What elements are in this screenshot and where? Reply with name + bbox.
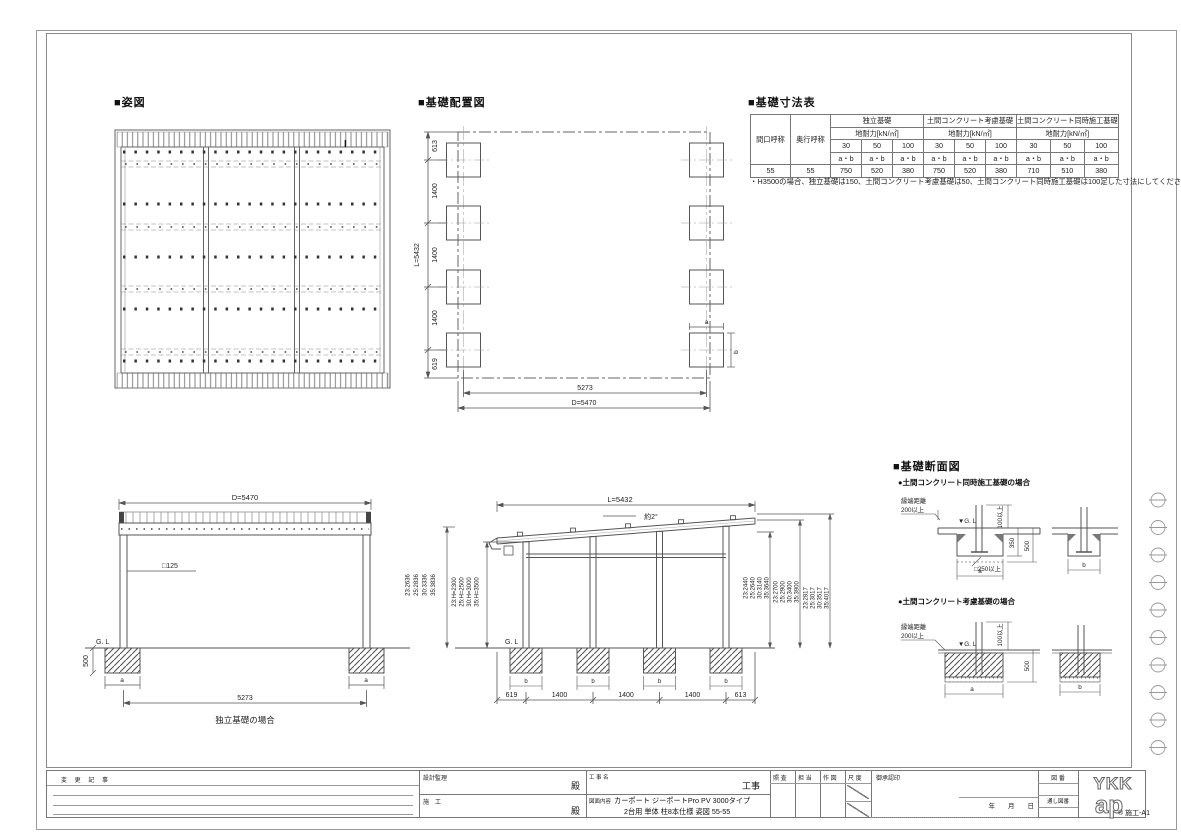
subheader-bearing: 地耐力[kN/㎡] bbox=[831, 127, 924, 140]
scale-label: 尺 度 bbox=[848, 773, 862, 782]
side-h-inner: 35:H=3500 bbox=[475, 577, 481, 607]
drawing-content-line1: カーポート ジーポートPro PV 3000タイプ bbox=[614, 796, 750, 807]
front-dim-total: D=5470 bbox=[232, 493, 258, 502]
side-dim-613: 613 bbox=[735, 692, 747, 699]
ab-header: a・b bbox=[1050, 152, 1084, 165]
dim-b: b bbox=[733, 350, 740, 354]
capacity: 100 bbox=[893, 140, 924, 153]
ab-header: a・b bbox=[893, 152, 924, 165]
drawing-number-cell: 図 番 通し図番 bbox=[1038, 771, 1078, 819]
change-record-label: 変 更 記 事 bbox=[61, 775, 111, 784]
col-header-depth: 奥行呼称 bbox=[791, 115, 831, 165]
sec1-b: b bbox=[1082, 562, 1086, 569]
ab-header: a・b bbox=[955, 152, 986, 165]
project-name-label: 工 事 名 bbox=[589, 773, 609, 781]
front-dim-a: a bbox=[120, 677, 124, 684]
project-name-cell: 工 事 名 工事 bbox=[586, 771, 770, 795]
ab-header: a・b bbox=[1017, 152, 1051, 165]
drawing-content-label: 図面内容 bbox=[589, 797, 611, 805]
construction-cell: 施 工 殿 bbox=[419, 795, 586, 819]
logo-ykk-text: YKK bbox=[1094, 774, 1133, 793]
sec1-500: 500 bbox=[1024, 540, 1031, 551]
capacity: 50 bbox=[1050, 140, 1084, 153]
plan-title: ■姿図 bbox=[114, 94, 146, 110]
front-dim-500: 500 bbox=[83, 655, 90, 667]
sec2-edge-min: 200以上 bbox=[901, 631, 924, 640]
side-dim-619: 619 bbox=[506, 692, 518, 699]
ab-header: a・b bbox=[924, 152, 955, 165]
side-dim-1400: 1400 bbox=[685, 692, 701, 699]
construction-dono: 殿 bbox=[571, 804, 580, 817]
dim-1400: 1400 bbox=[432, 183, 439, 199]
charge-label: 担 当 bbox=[798, 773, 812, 782]
capacity: 30 bbox=[924, 140, 955, 153]
sec2-b: b bbox=[1078, 684, 1082, 691]
dim-l-total: L=5432 bbox=[414, 243, 421, 267]
front-gl-label: G. L bbox=[96, 639, 109, 646]
side-dim-1400: 1400 bbox=[552, 692, 568, 699]
side-r1: 30:3140 bbox=[758, 577, 764, 599]
side-dim-total: L=5432 bbox=[607, 495, 632, 504]
ab-header: a・b bbox=[862, 152, 893, 165]
change-record-cell: 変 更 記 事 bbox=[47, 771, 419, 819]
group-header-considered: 土間コンクリート考慮基礎 bbox=[924, 115, 1017, 128]
section1-subtitle: ●土間コンクリート同時施工基礎の場合 bbox=[898, 477, 1030, 488]
sec1-min100: 100以上 bbox=[995, 505, 1004, 528]
design-supervision-label: 設計監理 bbox=[423, 773, 447, 782]
capacity: 50 bbox=[955, 140, 986, 153]
front-post-size: □125 bbox=[162, 563, 178, 570]
side-h-inner: 30:H=3000 bbox=[467, 577, 473, 607]
plan-section-mark: I bbox=[344, 139, 347, 150]
ab-header: a・b bbox=[1084, 152, 1118, 165]
side-slope: 約2° bbox=[644, 512, 658, 521]
table-title: ■基礎寸法表 bbox=[748, 94, 816, 110]
sec1-edge-min: 200以上 bbox=[901, 505, 924, 514]
date-label: 年 月 日 bbox=[989, 800, 1035, 810]
side-r3: 23:2817 bbox=[804, 587, 810, 609]
subheader-bearing: 地耐力[kN/㎡] bbox=[924, 127, 1017, 140]
project-name-value: 工事 bbox=[742, 779, 760, 792]
side-dim-1400: 1400 bbox=[618, 692, 634, 699]
foundation-layout-figure: 613 1400 1400 1400 619 L=5432 5273 D=547… bbox=[414, 126, 740, 412]
sec1-edge-dist: 縁端距離 bbox=[901, 496, 927, 505]
foundation-dimension-table: 間口呼称 奥行呼称 独立基礎 土間コンクリート考慮基礎 土間コンクリート同時施工… bbox=[750, 114, 1119, 178]
draw-column: 作 図 bbox=[820, 771, 845, 819]
side-r3: 25:3017 bbox=[811, 587, 817, 609]
dim-613: 613 bbox=[432, 140, 439, 152]
sheet-number: ® 施工-A1 bbox=[1118, 808, 1150, 818]
dim-1400: 1400 bbox=[432, 247, 439, 263]
draw-label: 作 図 bbox=[823, 773, 837, 782]
col-header-width: 間口呼称 bbox=[751, 115, 791, 165]
side-r2: 25:2900 bbox=[781, 581, 787, 603]
dim-d5470: D=5470 bbox=[572, 400, 597, 407]
drawing-number-label: 図 番 bbox=[1038, 773, 1078, 782]
drawing-content-line2: 2台用 単体 柱8本仕様 姿図 55-55 bbox=[624, 807, 730, 818]
side-r3: 30:3517 bbox=[818, 587, 824, 609]
group-header-simultaneous: 土間コンクリート同時施工基礎 bbox=[1017, 115, 1119, 128]
design-supervision-cell: 設計監理 殿 bbox=[419, 771, 586, 795]
check-column: 照 査 bbox=[770, 771, 795, 819]
binder-hole-marks bbox=[1149, 493, 1167, 755]
sec2-edge-dist: 縁端距離 bbox=[901, 622, 927, 631]
side-dim-b: b bbox=[724, 679, 728, 685]
approval-label: 御承認印 bbox=[876, 773, 900, 782]
capacity: 30 bbox=[831, 140, 862, 153]
front-caption: 独立基礎の場合 bbox=[215, 715, 275, 725]
approval-cell: 御承認印 年 月 日 bbox=[871, 771, 1038, 819]
side-dim-b: b bbox=[591, 679, 595, 685]
side-h-outer: 35:3836 bbox=[431, 574, 437, 596]
side-elevation-figure: L=5432 約2° G. L 23:2636 25:2836 30:3336 … bbox=[406, 495, 835, 704]
scale-column: 尺 度 bbox=[845, 771, 871, 819]
front-elevation-figure: D=5470 □125 G. L 500 a a 5273 独立基礎の場合 bbox=[83, 493, 410, 725]
dim-619: 619 bbox=[432, 358, 439, 370]
serial-number-label: 通し図番 bbox=[1038, 797, 1078, 805]
charge-column: 担 当 bbox=[795, 771, 820, 819]
design-dono: 殿 bbox=[571, 779, 580, 792]
check-label: 照 査 bbox=[773, 773, 787, 782]
side-r2: 23:2700 bbox=[774, 581, 780, 603]
side-r1: 25:2640 bbox=[751, 577, 757, 599]
side-r3: 35:4017 bbox=[825, 587, 831, 609]
side-h-inner: 23:H=2300 bbox=[452, 577, 458, 607]
side-r2: 30:3400 bbox=[788, 581, 794, 603]
ab-header: a・b bbox=[986, 152, 1017, 165]
scale-slash bbox=[847, 803, 869, 817]
drawing-sheet: { "titles": { "plan": "■姿図", "layout": "… bbox=[0, 0, 1181, 835]
dim-a: a bbox=[705, 319, 709, 326]
side-h-outer: 23:2636 bbox=[406, 574, 412, 596]
side-h-inner: 25:H=2500 bbox=[460, 577, 466, 607]
capacity: 100 bbox=[1084, 140, 1118, 153]
sec2-min100: 100以上 bbox=[995, 623, 1004, 646]
group-header-independent: 独立基礎 bbox=[831, 115, 924, 128]
sec2-500: 500 bbox=[1024, 660, 1031, 671]
side-r1: 23:2440 bbox=[744, 577, 750, 599]
front-dim-5273: 5273 bbox=[237, 695, 253, 702]
drawing-content-cell: 図面内容 カーポート ジーポートPro PV 3000タイプ 2台用 単体 柱8… bbox=[586, 795, 770, 819]
subheader-bearing: 地耐力[kN/㎡] bbox=[1017, 127, 1119, 140]
capacity: 50 bbox=[862, 140, 893, 153]
title-block: 変 更 記 事 設計監理 殿 施 工 殿 工 事 名 工事 図面内容 カーポート… bbox=[46, 770, 1146, 818]
dim-5273: 5273 bbox=[577, 385, 593, 392]
section-title: ■基礎断面図 bbox=[893, 458, 961, 474]
capacity: 30 bbox=[1017, 140, 1051, 153]
side-dim-b: b bbox=[658, 679, 662, 685]
table-note: ・H3500の場合、独立基礎は150、土間コンクリート考慮基礎は50、土間コンク… bbox=[750, 176, 1181, 187]
sec1-gl: ▼G. L bbox=[958, 518, 977, 525]
side-r1: 35:3640 bbox=[765, 577, 771, 599]
sec1-a: a bbox=[978, 568, 982, 575]
front-dim-a: a bbox=[364, 677, 368, 684]
scale-slash bbox=[847, 785, 869, 799]
dim-1400: 1400 bbox=[432, 310, 439, 326]
side-dim-b: b bbox=[524, 679, 528, 685]
sec1-350: 350 bbox=[1009, 537, 1016, 548]
side-gl-label: G. L bbox=[505, 639, 518, 646]
side-h-outer: 25:2836 bbox=[414, 574, 420, 596]
sec2-a: a bbox=[970, 686, 974, 693]
side-h-outer: 30:3336 bbox=[423, 574, 429, 596]
sec2-gl: ▼G. L bbox=[958, 641, 977, 648]
side-r2: 35:3900 bbox=[795, 581, 801, 603]
layout-title: ■基礎配置図 bbox=[418, 94, 486, 110]
plan-view-figure: I bbox=[115, 130, 390, 388]
construction-label: 施 工 bbox=[423, 797, 441, 806]
capacity: 100 bbox=[986, 140, 1017, 153]
section2-subtitle: ●土間コンクリート考慮基礎の場合 bbox=[898, 596, 1015, 607]
ab-header: a・b bbox=[831, 152, 862, 165]
